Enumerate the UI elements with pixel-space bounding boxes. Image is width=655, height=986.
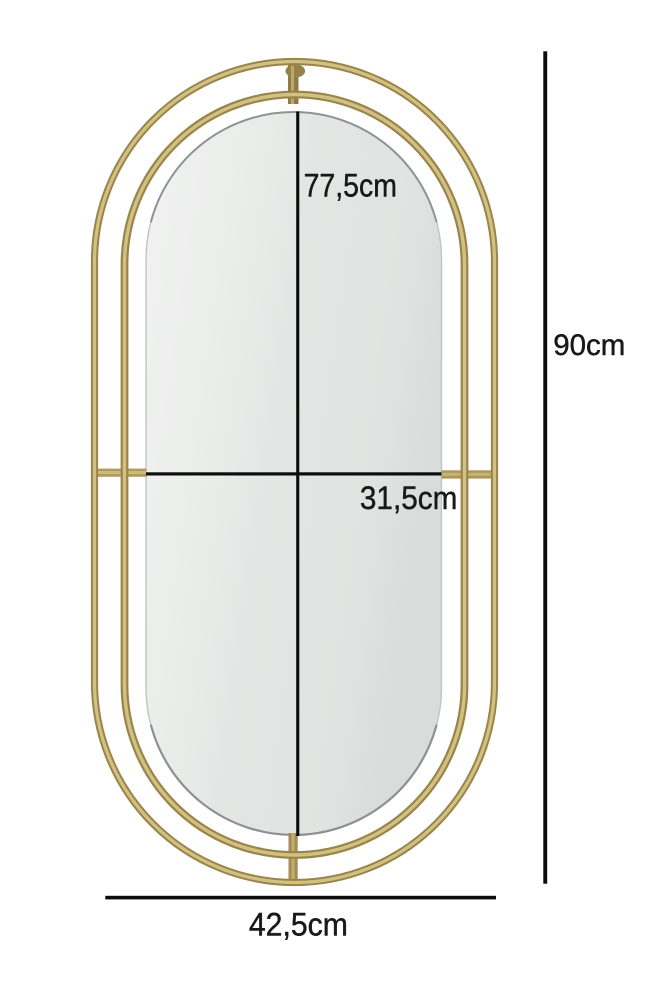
svg-text:77,5cm: 77,5cm xyxy=(304,167,397,203)
svg-text:42,5cm: 42,5cm xyxy=(249,907,348,943)
svg-text:90cm: 90cm xyxy=(553,329,625,362)
svg-text:31,5cm: 31,5cm xyxy=(360,480,458,516)
